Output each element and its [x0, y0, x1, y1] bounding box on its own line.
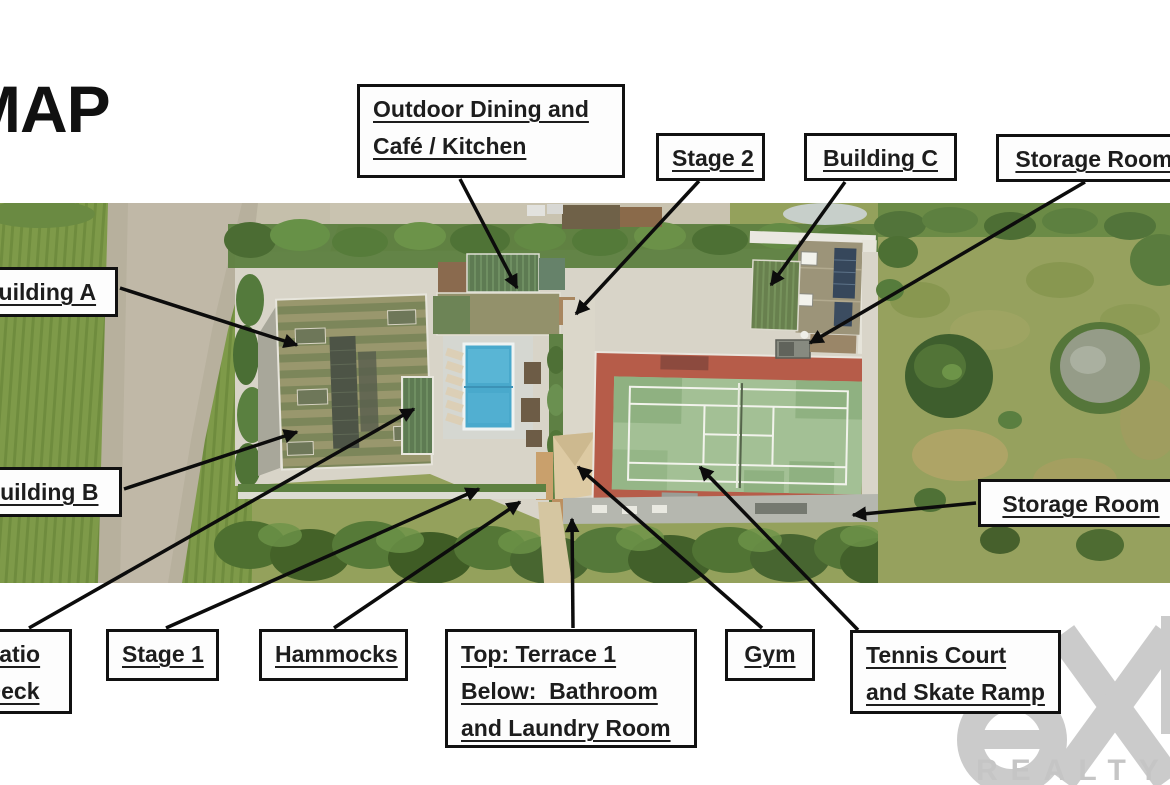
label-storage-room-top: Storage Room	[996, 134, 1170, 182]
label-text: Café / Kitchen	[373, 128, 609, 165]
tennis-court	[592, 352, 881, 515]
label-text: Hammocks	[275, 636, 392, 673]
label-storage-room-right: Storage Room	[978, 479, 1170, 527]
label-tennis-court-skate-ramp: Tennis Court and Skate Ramp	[850, 630, 1061, 714]
label-stage-2: Stage 2	[656, 133, 765, 181]
label-text: Storage Room	[994, 486, 1168, 523]
label-text: Patio	[0, 636, 56, 673]
arrow-terrace	[572, 519, 573, 628]
solar-panels	[833, 248, 857, 299]
label-text: Building A	[0, 274, 102, 311]
label-patio-deck: Patio Deck	[0, 629, 72, 714]
label-text: Gym	[741, 636, 799, 673]
truck	[562, 205, 620, 229]
fence	[238, 492, 546, 499]
label-hammocks: Hammocks	[259, 629, 408, 681]
label-text: Tennis Court	[866, 637, 1045, 674]
page-title: MAP	[0, 76, 110, 142]
label-text: Top: Terrace 1	[461, 636, 681, 673]
label-text: Below: Bathroom	[461, 673, 681, 710]
label-building-a: Building A	[0, 267, 118, 317]
label-text: Stage 1	[122, 636, 203, 673]
label-text: Stage 2	[672, 140, 749, 177]
logo-letter-p-stem	[1161, 616, 1170, 734]
label-building-b: Building B	[0, 467, 122, 517]
label-outdoor-dining: Outdoor Dining and Café / Kitchen	[357, 84, 625, 178]
watermark-realty-text: REALTY	[976, 754, 1170, 785]
label-text: Outdoor Dining and	[373, 91, 609, 128]
stage-structure	[402, 377, 433, 454]
label-terrace-bathroom-laundry: Top: Terrace 1 Below: Bathroom and Laund…	[445, 629, 697, 748]
label-text: Building C	[820, 140, 941, 177]
label-text: Deck	[0, 673, 56, 710]
label-text: Storage Room	[1012, 141, 1170, 178]
label-text: Building B	[0, 474, 106, 511]
label-building-c: Building C	[804, 133, 957, 181]
label-gym: Gym	[725, 629, 815, 681]
property-map-page: REALTY MAP Outdoor Dining and Café / Kit…	[0, 0, 1170, 785]
car	[527, 205, 545, 216]
label-text: and Skate Ramp	[866, 674, 1045, 711]
label-text: and Laundry Room	[461, 710, 681, 747]
aerial-photo	[0, 200, 1170, 586]
label-stage-1: Stage 1	[106, 629, 219, 681]
